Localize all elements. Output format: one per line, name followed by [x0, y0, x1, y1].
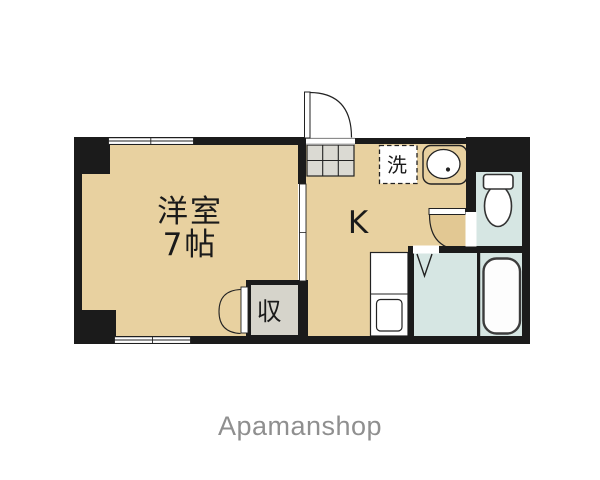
wall-toilet-left — [466, 172, 476, 212]
toilet-door-leaf-icon — [429, 209, 466, 215]
toilet-tank-icon — [484, 175, 514, 190]
entrance-door-icon — [305, 92, 352, 138]
window-bottom-icon — [115, 337, 191, 344]
bath-divider-wall — [477, 253, 480, 336]
pillar-bottom-left — [74, 310, 116, 344]
window-top-icon — [109, 138, 194, 145]
wall-top-mid — [355, 138, 470, 144]
western-room-size-label: 7帖 — [163, 227, 218, 263]
closet-door-leaf-icon — [241, 287, 248, 333]
wall-room-divider-bottom — [298, 280, 306, 338]
washer-space-label: 洗 — [387, 153, 409, 177]
floorplan-page: 洋室 7帖 K 収 洗 Apamanshop — [0, 0, 600, 480]
bathtub-icon — [484, 259, 521, 334]
wall-room-divider-top — [298, 143, 306, 184]
wall-right — [522, 137, 530, 344]
wall-block-top-right — [466, 137, 530, 172]
kitchen-sink-bowl-icon — [427, 150, 460, 179]
toilet-bowl-icon — [485, 186, 512, 227]
floorplan-drawing: 洋室 7帖 K 収 洗 — [0, 0, 600, 480]
toilet-doorway-gap — [466, 212, 477, 247]
apamanshop-watermark: Apamanshop — [0, 411, 600, 442]
western-room-label: 洋室 — [157, 194, 223, 230]
pillar-top-left — [74, 137, 110, 174]
bath-doorway-gap — [413, 246, 439, 254]
wall-counter-right — [408, 246, 414, 336]
closet-label: 収 — [256, 297, 283, 326]
sink-drain-icon — [446, 167, 450, 171]
stove-icon — [377, 300, 403, 332]
entrance-threshold — [306, 138, 355, 146]
kitchen-label: K — [348, 205, 370, 241]
sliding-door-icon — [300, 184, 307, 281]
